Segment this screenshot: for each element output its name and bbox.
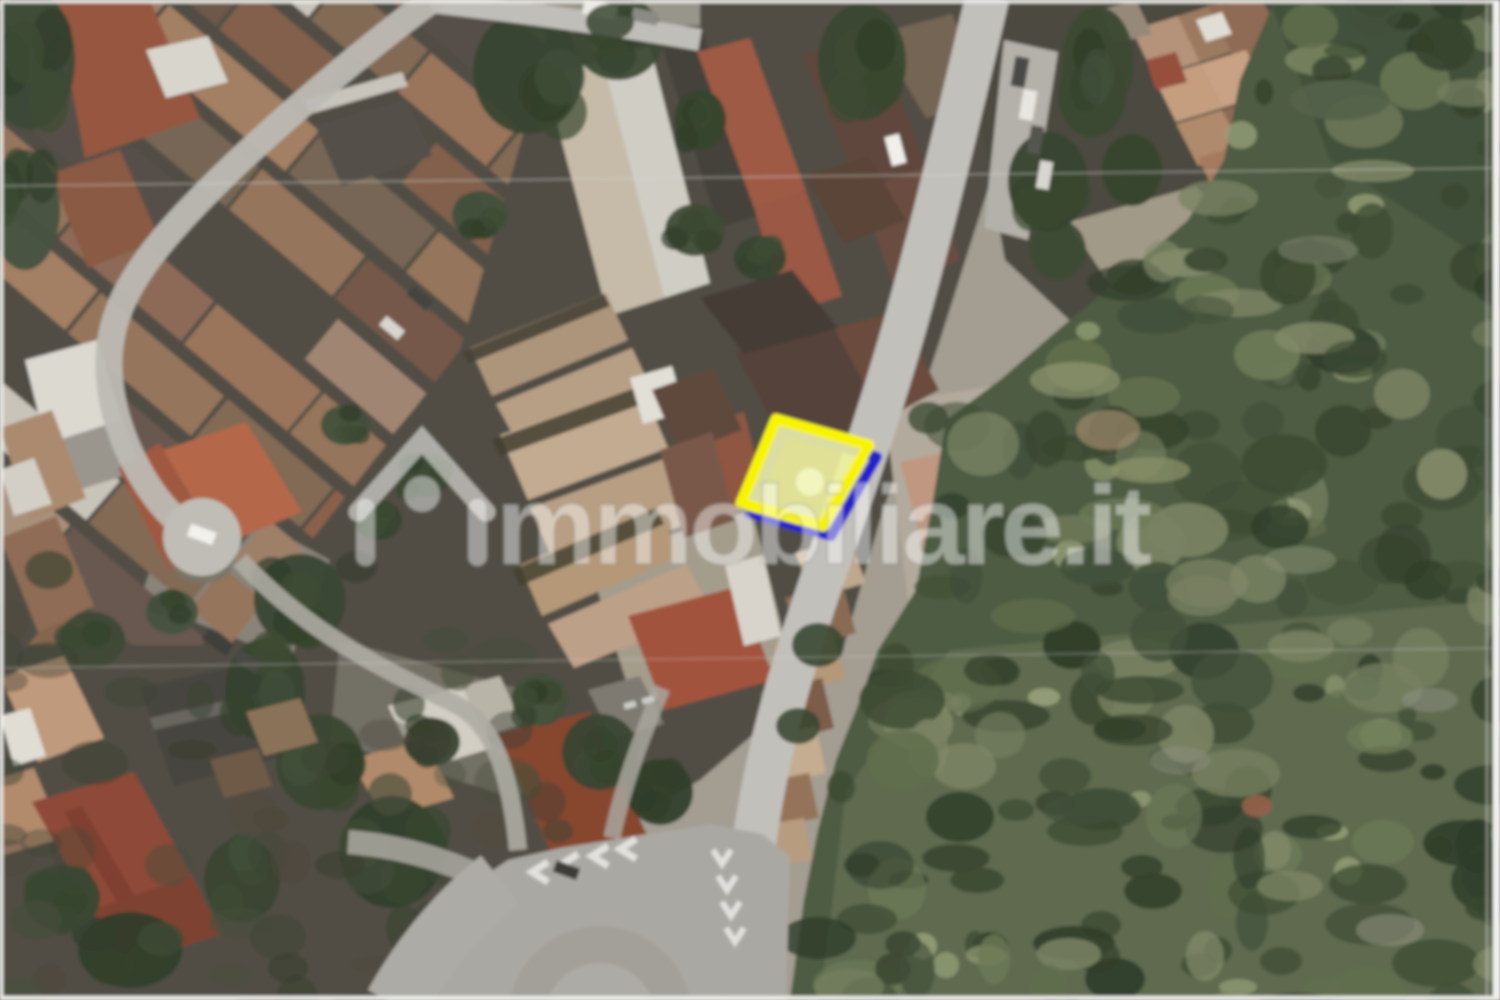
svg-text:mmobiliare.it: mmobiliare.it — [496, 463, 1151, 588]
